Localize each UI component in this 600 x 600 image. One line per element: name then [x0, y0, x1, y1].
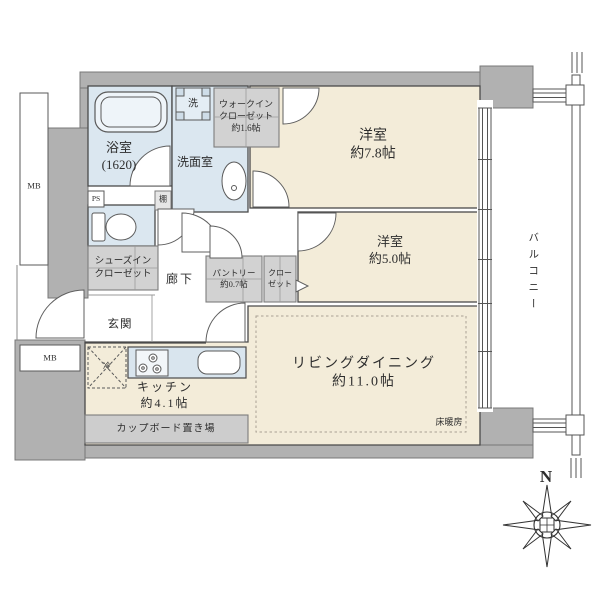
front-door	[36, 290, 84, 338]
compass-icon	[503, 485, 591, 567]
toilet-icon	[92, 213, 136, 241]
meter-box-lower-area	[20, 345, 80, 371]
floor-plan-drawing	[0, 0, 600, 600]
living-door	[206, 303, 245, 342]
boundary-hatch-bottom	[571, 458, 581, 478]
washer-icon	[176, 88, 210, 120]
entry-step-lines	[88, 295, 155, 342]
balcony-railing	[533, 52, 584, 478]
walk-in-closet-area	[214, 88, 279, 147]
sink-icon	[198, 351, 240, 374]
washbasin-icon	[222, 162, 246, 200]
floor-plan: 浴室 (1620) 洗 ウォークイン クローゼット 約1.6帖 洗面室 洋室 約…	[0, 0, 600, 600]
pantry-door	[210, 226, 242, 258]
boundary-hatch-top	[572, 52, 582, 73]
balcony-partition-bottom	[533, 419, 569, 432]
shelf-box	[155, 191, 171, 210]
balcony-partition-top	[533, 89, 569, 102]
refrigerator-space	[88, 347, 126, 388]
windows	[477, 100, 493, 412]
meter-box-upper-area	[20, 93, 48, 265]
pipe-space-box	[88, 191, 104, 207]
cupboard-space-area	[85, 415, 248, 443]
kitchen-counter	[128, 347, 246, 378]
bathtub-icon	[95, 92, 167, 132]
